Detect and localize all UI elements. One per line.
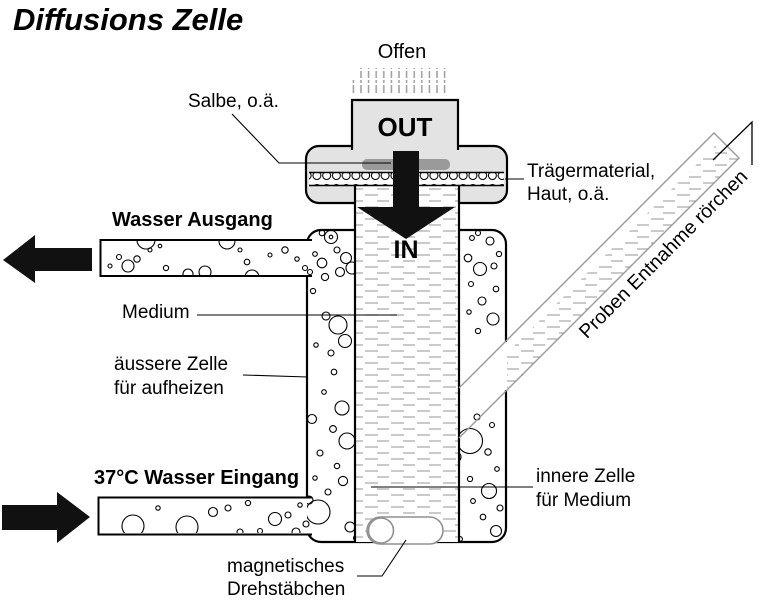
water-outlet-arrow — [3, 235, 92, 283]
diffusion-cell-diagram: Diffusions Zelle Offen Salbe, o.ä. OUT I… — [0, 0, 759, 600]
open-top-hatch — [352, 68, 449, 93]
aeussere-zelle-label-line1: äussere Zelle — [114, 354, 228, 376]
stir-bar — [367, 517, 443, 544]
open-label: Offen — [360, 41, 444, 63]
diagram-title: Diffusions Zelle — [13, 2, 243, 38]
traegermaterial-label-line1: Trägermaterial, — [527, 161, 655, 183]
medium-label: Medium — [122, 302, 190, 324]
wasser-ausgang-label: Wasser Ausgang — [112, 209, 273, 231]
stir-bar-leader — [357, 540, 406, 576]
wasser-eingang-label: 37°C Wasser Eingang — [94, 467, 299, 489]
water-inlet-arrow — [2, 492, 90, 543]
aeussere-zelle-label-line2: für aufheizen — [114, 378, 224, 400]
out-label: OUT — [352, 112, 458, 143]
magnet-stir-label-line2: Drehstäbchen — [227, 579, 345, 600]
innere-zelle-label-line1: innere Zelle — [536, 466, 635, 488]
salbe-label: Salbe, o.ä. — [188, 91, 279, 113]
in-label: IN — [380, 236, 432, 265]
diagram-canvas — [0, 0, 759, 600]
water-inlet-channel — [99, 498, 313, 535]
magnet-stir-label-line1: magnetisches — [227, 556, 344, 578]
traegermaterial-label-line2: Haut, o.ä. — [527, 184, 609, 206]
innere-zelle-label-line2: für Medium — [536, 490, 631, 512]
aeussere-zelle-leader — [243, 375, 308, 377]
